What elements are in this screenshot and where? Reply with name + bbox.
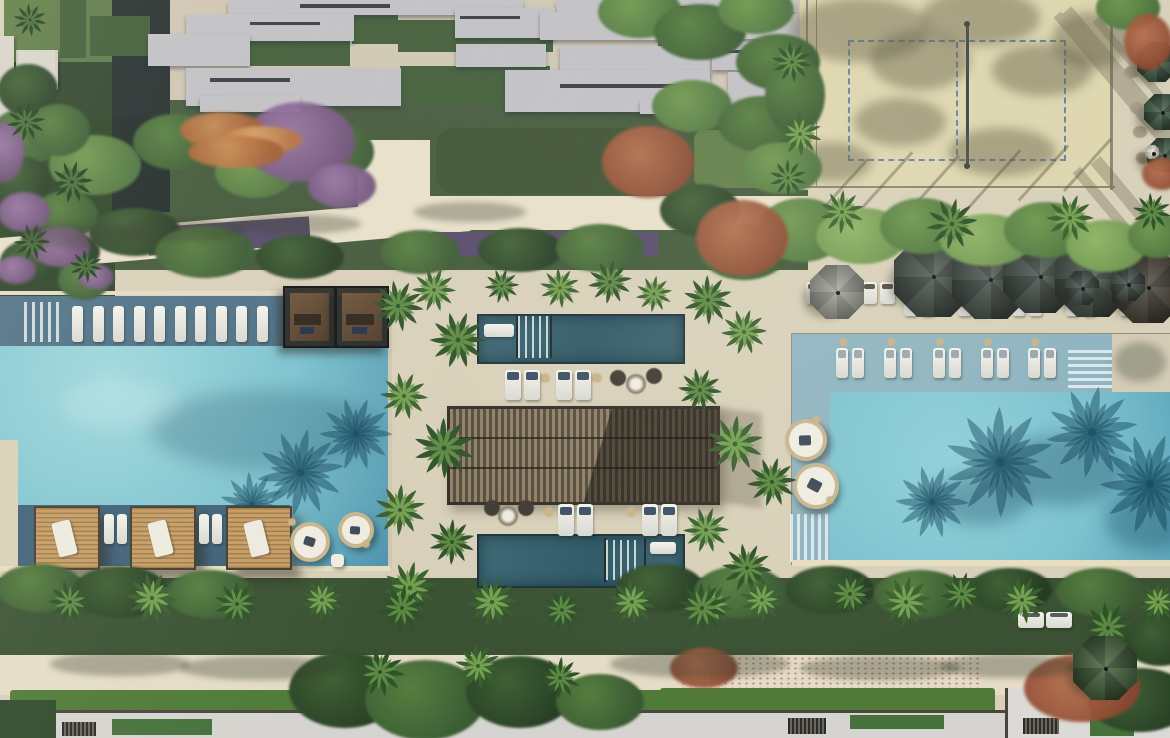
sunlight-overlay — [0, 0, 1170, 738]
aerial-resort-rendering — [0, 0, 1170, 738]
